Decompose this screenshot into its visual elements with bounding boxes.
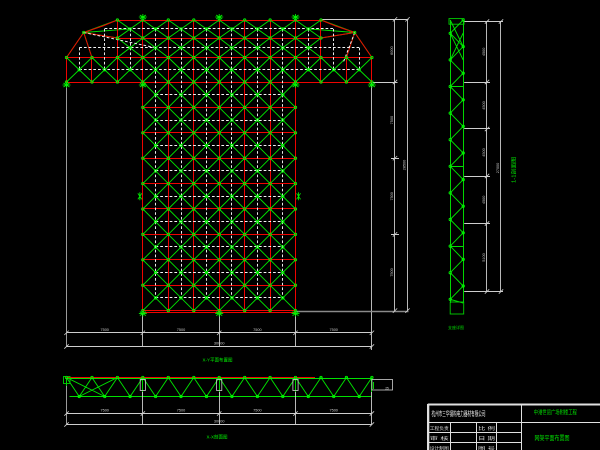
svg-text:1-1剖面图: 1-1剖面图 (511, 157, 518, 183)
svg-text:25: 25 (385, 387, 389, 391)
svg-text:设计制图: 设计制图 (430, 445, 450, 450)
svg-text:工程负责: 工程负责 (430, 425, 450, 432)
svg-text:比 例: 比 例 (478, 425, 496, 432)
svg-text:X-Y平面布置图: X-Y平面布置图 (203, 356, 233, 363)
svg-text:6000: 6000 (390, 46, 394, 54)
svg-text:28500: 28500 (402, 160, 406, 171)
svg-text:27000: 27000 (496, 163, 500, 174)
svg-text:7500: 7500 (177, 409, 185, 413)
svg-text:7500: 7500 (253, 328, 261, 332)
svg-text:7500: 7500 (390, 268, 394, 276)
svg-text:审 核: 审 核 (430, 435, 450, 442)
svg-text:4500: 4500 (482, 48, 486, 56)
svg-text:7500: 7500 (177, 328, 185, 332)
svg-text:X-X剖面图: X-X剖面图 (207, 434, 228, 441)
svg-text:30000: 30000 (214, 420, 225, 424)
svg-text:网架平面布置图: 网架平面布置图 (535, 433, 570, 442)
svg-text:支座详图: 支座详图 (448, 324, 464, 331)
svg-text:7500: 7500 (329, 409, 337, 413)
svg-text:4500: 4500 (482, 148, 486, 156)
svg-text:中港世贸广场附楼工程: 中港世贸广场附楼工程 (534, 409, 577, 417)
svg-text:杭州市三华钢构电力器材有限公司: 杭州市三华钢构电力器材有限公司 (432, 409, 486, 418)
svg-text:7500: 7500 (253, 409, 261, 413)
svg-text:7500: 7500 (100, 328, 108, 332)
svg-text:7500: 7500 (100, 409, 108, 413)
svg-text:7500: 7500 (390, 116, 394, 124)
svg-text:4500: 4500 (482, 101, 486, 109)
svg-text:30000: 30000 (214, 342, 225, 346)
svg-text:7500: 7500 (329, 328, 337, 332)
svg-text:7500: 7500 (390, 192, 394, 200)
svg-text:图 号: 图 号 (478, 446, 496, 450)
svg-text:5100: 5100 (482, 253, 486, 261)
svg-text:4500: 4500 (482, 196, 486, 204)
